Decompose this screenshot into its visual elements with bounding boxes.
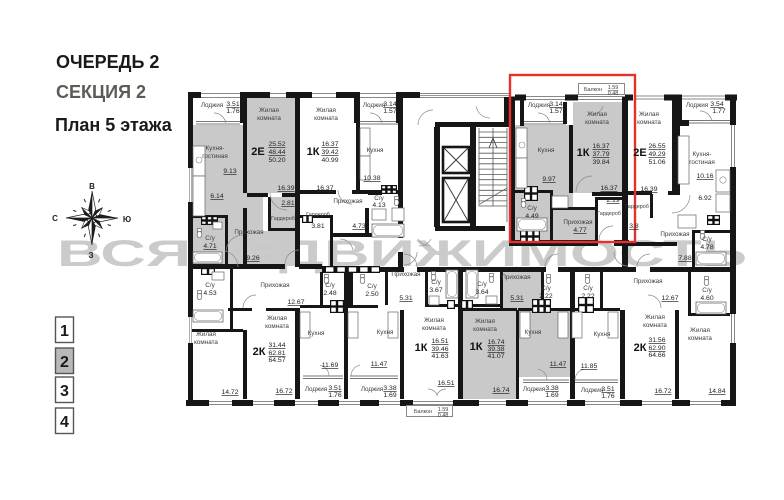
svg-text:1.57: 1.57 <box>549 108 562 115</box>
svg-text:комната: комната <box>688 335 712 342</box>
svg-text:51.06: 51.06 <box>648 159 665 166</box>
svg-text:Лоджия: Лоджия <box>686 102 708 109</box>
svg-text:14.84: 14.84 <box>708 388 725 395</box>
svg-text:10.38: 10.38 <box>363 175 380 182</box>
svg-text:11.47: 11.47 <box>371 361 388 368</box>
svg-text:Лоджия: Лоджия <box>363 102 385 109</box>
svg-text:0.48: 0.48 <box>608 91 619 97</box>
svg-text:16.51: 16.51 <box>431 338 448 345</box>
svg-text:6.92: 6.92 <box>698 195 711 202</box>
svg-text:14.72: 14.72 <box>221 389 238 396</box>
svg-text:комната: комната <box>643 322 667 329</box>
svg-text:16.39: 16.39 <box>640 186 657 193</box>
svg-text:С/у: С/у <box>431 279 441 286</box>
svg-text:5.31: 5.31 <box>510 295 523 302</box>
svg-text:Лоджия: Лоджия <box>361 386 383 393</box>
svg-text:С/у: С/у <box>205 282 215 289</box>
svg-text:1.69: 1.69 <box>383 392 396 399</box>
svg-text:5.31: 5.31 <box>399 295 412 302</box>
svg-text:3.51: 3.51 <box>601 386 614 393</box>
svg-text:16.51: 16.51 <box>437 380 454 387</box>
svg-text:62.90: 62.90 <box>648 345 665 352</box>
svg-text:16.37: 16.37 <box>592 143 609 150</box>
svg-text:11.85: 11.85 <box>581 363 598 370</box>
svg-text:З: З <box>88 251 93 260</box>
svg-text:64.66: 64.66 <box>648 352 665 359</box>
svg-text:Кухня-: Кухня- <box>693 151 712 158</box>
svg-text:4: 4 <box>60 414 69 431</box>
svg-text:7.88: 7.88 <box>678 255 691 262</box>
svg-text:40.99: 40.99 <box>321 157 338 164</box>
svg-text:3.38: 3.38 <box>545 385 558 392</box>
svg-text:4.60: 4.60 <box>700 295 713 302</box>
svg-text:Жилая: Жилая <box>639 111 659 118</box>
svg-text:11.47: 11.47 <box>550 361 567 368</box>
svg-text:Ю: Ю <box>123 215 131 224</box>
svg-text:9.26: 9.26 <box>246 255 259 262</box>
svg-text:1К: 1К <box>470 341 483 353</box>
svg-text:Гардероб: Гардероб <box>597 211 621 217</box>
svg-text:С/у: С/у <box>477 281 487 288</box>
svg-text:41.63: 41.63 <box>431 353 448 360</box>
svg-text:2.50: 2.50 <box>365 291 378 298</box>
svg-text:4.53: 4.53 <box>203 290 216 297</box>
svg-text:2.22: 2.22 <box>581 293 594 300</box>
svg-text:11.69: 11.69 <box>322 362 339 369</box>
svg-text:С/у: С/у <box>374 195 384 202</box>
svg-text:Кухня: Кухня <box>367 147 384 154</box>
svg-text:2.22: 2.22 <box>539 293 552 300</box>
svg-text:62.81: 62.81 <box>268 350 285 357</box>
svg-text:Жилая: Жилая <box>259 107 279 114</box>
svg-text:39.42: 39.42 <box>321 149 338 156</box>
svg-text:4.73: 4.73 <box>352 223 365 230</box>
svg-text:26.55: 26.55 <box>648 143 665 150</box>
svg-text:1.77: 1.77 <box>712 108 725 115</box>
svg-text:Прихожая: Прихожая <box>260 282 289 289</box>
svg-text:48.44: 48.44 <box>268 149 285 156</box>
svg-text:2.48: 2.48 <box>323 290 336 297</box>
svg-text:2Е: 2Е <box>251 146 264 158</box>
svg-text:3.14: 3.14 <box>549 101 562 108</box>
svg-text:План 5 этажа: План 5 этажа <box>55 115 173 135</box>
svg-text:9.97: 9.97 <box>542 176 555 183</box>
svg-text:12.67: 12.67 <box>287 299 304 306</box>
svg-text:Жилая: Жилая <box>475 318 495 325</box>
svg-text:Прихожая: Прихожая <box>501 274 530 281</box>
svg-text:С/у: С/у <box>527 205 537 212</box>
svg-text:3.38: 3.38 <box>383 385 396 392</box>
svg-text:Жилая: Жилая <box>196 331 216 338</box>
svg-text:С/у: С/у <box>367 283 377 290</box>
svg-text:комната: комната <box>194 339 218 346</box>
svg-text:гостиная: гостиная <box>689 159 715 166</box>
svg-text:комната: комната <box>585 119 609 126</box>
svg-text:комната: комната <box>265 323 289 330</box>
svg-text:Прихожая: Прихожая <box>391 271 420 278</box>
svg-text:3: 3 <box>60 383 69 400</box>
svg-text:3.8: 3.8 <box>629 223 639 230</box>
svg-text:4.13: 4.13 <box>372 202 385 209</box>
svg-text:С/у: С/у <box>205 235 215 242</box>
svg-text:3.51: 3.51 <box>328 385 341 392</box>
svg-text:12.67: 12.67 <box>661 295 678 302</box>
svg-text:3.14: 3.14 <box>383 101 396 108</box>
svg-text:16.37: 16.37 <box>316 185 333 192</box>
svg-text:С/у: С/у <box>541 285 551 292</box>
svg-text:25.52: 25.52 <box>268 141 285 148</box>
svg-text:1.76: 1.76 <box>601 393 614 400</box>
svg-text:Жилая: Жилая <box>424 317 444 324</box>
svg-text:16.39: 16.39 <box>277 185 294 192</box>
svg-text:гостиная: гостиная <box>202 153 228 160</box>
svg-text:Прихожая: Прихожая <box>333 198 362 205</box>
svg-text:2К: 2К <box>634 342 647 354</box>
svg-text:Кухня: Кухня <box>525 329 542 336</box>
svg-text:Кухня: Кухня <box>538 147 555 154</box>
svg-text:9.13: 9.13 <box>223 168 236 175</box>
svg-text:0.48: 0.48 <box>438 413 449 419</box>
svg-text:39.38: 39.38 <box>487 346 504 353</box>
svg-text:Гардероб: Гардероб <box>306 212 330 218</box>
svg-text:4.78: 4.78 <box>700 244 713 251</box>
svg-text:С/у: С/у <box>325 282 335 289</box>
svg-text:С/у: С/у <box>583 285 593 292</box>
svg-text:2Е: 2Е <box>633 147 646 159</box>
svg-text:3.67: 3.67 <box>429 287 442 294</box>
svg-text:Лоджия: Лоджия <box>201 102 223 109</box>
svg-text:16.72: 16.72 <box>654 388 671 395</box>
svg-text:Балкон: Балкон <box>414 409 432 415</box>
svg-text:3.54: 3.54 <box>710 101 723 108</box>
svg-text:Прихожая: Прихожая <box>633 278 662 285</box>
svg-text:Кухня: Кухня <box>308 330 325 337</box>
svg-text:31.44: 31.44 <box>268 342 285 349</box>
svg-text:Жилая: Жилая <box>587 111 607 118</box>
svg-text:3.81: 3.81 <box>311 223 324 230</box>
svg-text:1.69: 1.69 <box>545 392 558 399</box>
svg-text:Балкон: Балкон <box>584 87 602 93</box>
svg-text:1К: 1К <box>577 147 590 159</box>
svg-text:3.51: 3.51 <box>226 101 239 108</box>
svg-text:Прихожая: Прихожая <box>563 219 592 226</box>
svg-text:Жилая: Жилая <box>645 314 665 321</box>
svg-text:комната: комната <box>257 115 281 122</box>
svg-text:2: 2 <box>60 354 69 371</box>
svg-text:Прихожая: Прихожая <box>660 231 689 238</box>
svg-text:1: 1 <box>60 323 69 340</box>
svg-text:Жилая: Жилая <box>267 315 287 322</box>
svg-text:комната: комната <box>473 326 497 333</box>
svg-text:Жилая: Жилая <box>690 327 710 334</box>
svg-text:31.56: 31.56 <box>648 337 665 344</box>
svg-text:16.37: 16.37 <box>600 185 617 192</box>
svg-text:Жилая: Жилая <box>316 107 336 114</box>
svg-text:комната: комната <box>637 119 661 126</box>
svg-text:16.72: 16.72 <box>275 388 292 395</box>
svg-text:6.14: 6.14 <box>210 193 223 200</box>
svg-text:16.37: 16.37 <box>321 141 338 148</box>
svg-text:С/у: С/у <box>702 236 712 243</box>
svg-text:2.81: 2.81 <box>281 200 294 207</box>
svg-text:16.74: 16.74 <box>487 339 504 346</box>
svg-text:4.77: 4.77 <box>573 227 586 234</box>
svg-text:2.19: 2.19 <box>606 197 619 204</box>
svg-text:Лоджия: Лоджия <box>305 386 327 393</box>
svg-text:39.84: 39.84 <box>592 159 609 166</box>
svg-text:3.64: 3.64 <box>475 289 488 296</box>
svg-text:Гардероб: Гардероб <box>271 216 295 222</box>
svg-text:64.57: 64.57 <box>268 357 285 364</box>
svg-text:10.16: 10.16 <box>696 173 713 180</box>
svg-text:В: В <box>89 182 95 191</box>
svg-text:ОЧЕРЕДЬ 2: ОЧЕРЕДЬ 2 <box>56 52 159 72</box>
svg-text:16.74: 16.74 <box>492 387 509 394</box>
svg-text:37.79: 37.79 <box>592 151 609 158</box>
svg-text:1К: 1К <box>307 146 320 158</box>
svg-text:Лоджия: Лоджия <box>523 386 545 393</box>
svg-text:4.71: 4.71 <box>203 243 216 250</box>
svg-text:39.46: 39.46 <box>431 346 448 353</box>
svg-text:50.20: 50.20 <box>268 157 285 164</box>
svg-text:2К: 2К <box>253 346 266 358</box>
svg-text:Кухня-: Кухня- <box>206 145 225 152</box>
svg-text:1.76: 1.76 <box>328 392 341 399</box>
svg-text:Гардероб: Гардероб <box>625 204 649 210</box>
svg-text:СЕКЦИЯ 2: СЕКЦИЯ 2 <box>56 82 146 102</box>
svg-text:1.76: 1.76 <box>226 108 239 115</box>
svg-text:Прихожая: Прихожая <box>234 229 263 236</box>
svg-text:комната: комната <box>314 115 338 122</box>
svg-text:1.57: 1.57 <box>383 108 396 115</box>
svg-text:Лоджия: Лоджия <box>528 102 550 109</box>
svg-text:С: С <box>52 214 58 223</box>
svg-text:41.07: 41.07 <box>487 353 504 360</box>
svg-text:комната: комната <box>422 325 446 332</box>
svg-text:Кухня: Кухня <box>377 329 394 336</box>
svg-text:4.49: 4.49 <box>525 213 538 220</box>
svg-text:Кухня: Кухня <box>594 331 611 338</box>
svg-text:1К: 1К <box>415 342 428 354</box>
svg-text:С/у: С/у <box>702 287 712 294</box>
svg-text:49.29: 49.29 <box>648 151 665 158</box>
svg-text:Лоджия: Лоджия <box>581 387 603 394</box>
